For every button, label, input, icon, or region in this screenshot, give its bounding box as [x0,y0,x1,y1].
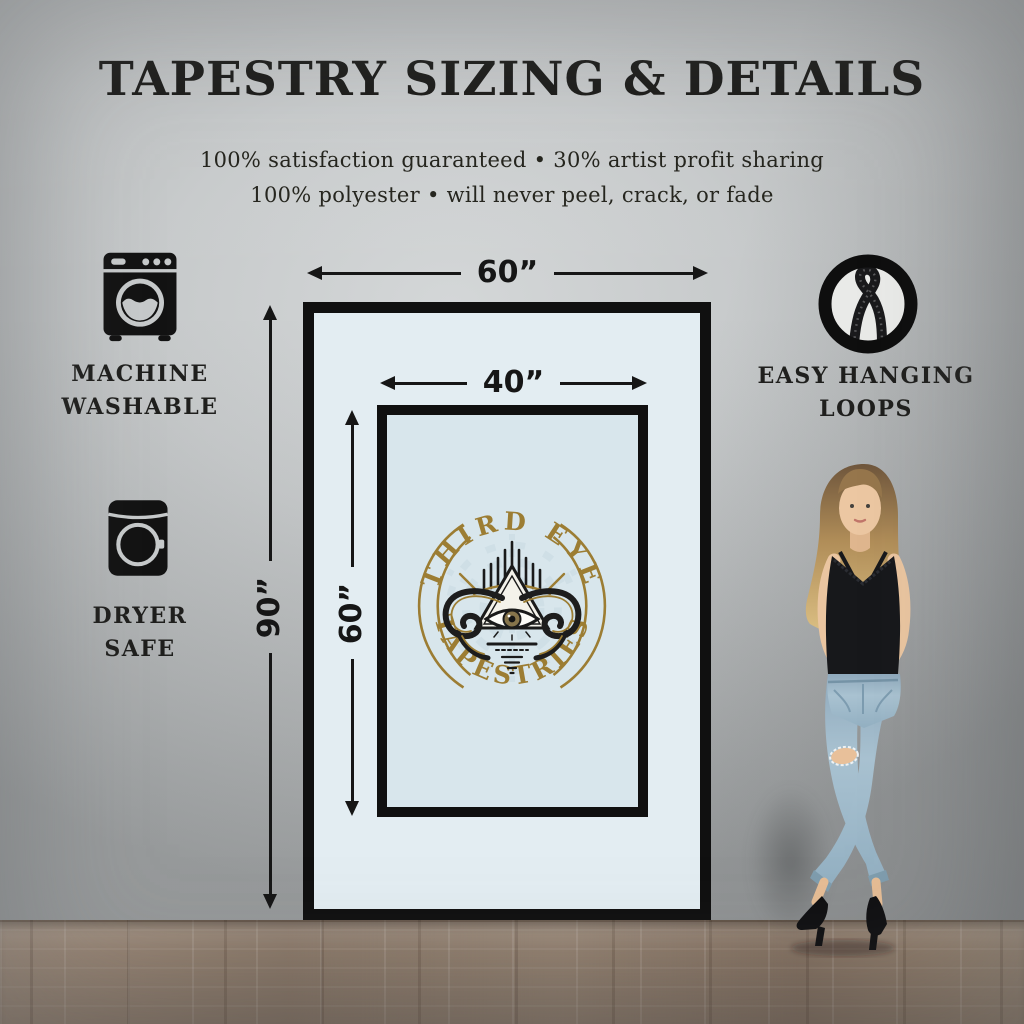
floor-shadow [791,940,895,956]
machine-washable-line2: WASHABLE [40,391,240,424]
dryer-safe-label: DRYER SAFE [40,600,240,666]
arrow-down-icon [345,801,359,816]
outer-height-dimension: 90” [256,305,284,909]
outer-width-value: 60” [461,259,554,287]
dryer-safe-line1: DRYER [40,600,240,633]
subtitle-line-1: 100% satisfaction guaranteed • 30% artis… [0,148,1024,172]
outer-height-value: 90” [253,576,288,637]
dryer-safe-line2: SAFE [40,633,240,666]
inner-height-dimension: 60” [338,410,366,816]
inner-width-value: 40” [467,369,560,397]
hanging-loops-line1: EASY HANGING [756,360,976,393]
machine-washable-line1: MACHINE [40,358,240,391]
subtitle-line-2: 100% polyester • will never peel, crack,… [0,183,1024,207]
washing-machine-icon [92,245,188,345]
machine-washable-label: MACHINE WASHABLE [40,358,240,424]
outer-width-dimension: 60” [307,259,708,287]
arrow-up-icon [263,305,277,320]
model-photo [768,452,968,964]
hanging-loops-label: EASY HANGING LOOPS [756,360,976,426]
arrow-down-icon [263,894,277,909]
dryer-icon [97,492,179,584]
inner-width-dimension: 40” [380,369,647,397]
arrow-up-icon [345,410,359,425]
third-eye-tapestries-logo: THIRD EYE TAPESTRIES [402,496,622,716]
inner-height-value: 60” [335,582,370,643]
arrow-left-icon [380,376,395,390]
arrow-right-icon [693,266,708,280]
hanging-loops-line2: LOOPS [756,393,976,426]
hanging-loop-icon [818,254,918,354]
page-title: TAPESTRY SIZING & DETAILS [0,52,1024,107]
arrow-left-icon [307,266,322,280]
tapestry-sizing-infographic: TAPESTRY SIZING & DETAILS 100% satisfact… [0,0,1024,1024]
arrow-right-icon [632,376,647,390]
